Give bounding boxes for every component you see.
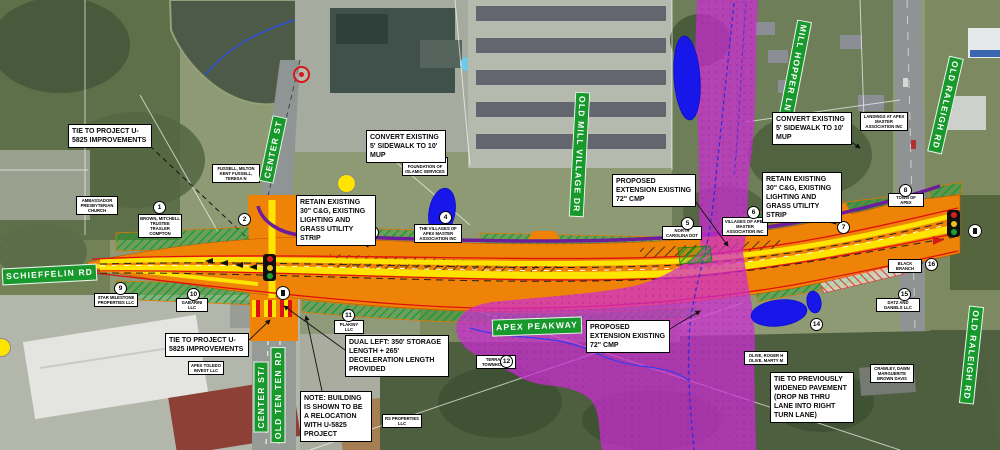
street-label-old-ten-ten-rd: OLD TEN TEN RD [271, 347, 286, 443]
red-utility-marker-icon [293, 66, 310, 83]
parcel-label: PLAKINY LLC [334, 320, 364, 334]
parcel-label: DATZ AND DANIELS LLC [876, 298, 920, 312]
callout-dual-left: DUAL LEFT: 350' STORAGE LENGTH + 265' DE… [345, 335, 449, 377]
callout-retain-cg-west: RETAIN EXISTING 30" C&G, EXISTING LIGHTI… [296, 195, 376, 246]
parcel-label: AMBASSADOR PRESBYTERIAN CHURCH [76, 196, 118, 215]
street-label-apex-peakway: APEX PEAKWAY [492, 316, 583, 336]
callout-proposed-ext-north: PROPOSED EXTENSION EXISTING 72" CMP [612, 174, 696, 207]
parcel-marker: 8 [899, 184, 912, 197]
parcel-label: THE VILLAGES OF APEX MASTER ASSOCIATION … [414, 224, 462, 243]
callout-convert-sidewalk-east: CONVERT EXISTING 5' SIDEWALK TO 10' MUP [772, 112, 852, 145]
callout-note-building: NOTE: BUILDING IS SHOWN TO BE A RELOCATI… [300, 391, 372, 442]
parcel-marker: 15 [898, 288, 911, 301]
bicycle-symbol-icon [968, 224, 982, 238]
plan-map: CENTER ST SCHIEFFELIN RD OLD MILL VILLAG… [0, 0, 1000, 450]
parcel-marker: 1 [153, 201, 166, 214]
callout-tie-u5825-sw: TIE TO PROJECT U-5825 IMPROVEMENTS [165, 333, 249, 357]
parcel-marker: 6 [747, 206, 760, 219]
pedestrian-symbol-icon [276, 286, 290, 300]
callout-proposed-ext-south: PROPOSED EXTENSION EXISTING 72" CMP [586, 320, 670, 353]
lane-tie-bars [252, 300, 292, 317]
parcel-label: STAR MILESTONE PROPERTIES LLC [94, 293, 138, 307]
callout-convert-sidewalk-west: CONVERT EXISTING 5' SIDEWALK TO 10' MUP [366, 130, 446, 163]
parcel-label: RS PROPERTIES LLC [382, 414, 422, 428]
street-label-center-st-south: CENTER ST/ [254, 362, 269, 433]
parcel-label: OLIVE, ROGER H OLIVE, MARTY M [744, 351, 788, 365]
parcel-label: CRAWLEY, DAWN MARGUERITE BROWN DAVIS [870, 364, 914, 383]
callout-tie-u5825-nw: TIE TO PROJECT U-5825 IMPROVEMENTS [68, 124, 152, 148]
signal-head-icon [337, 174, 356, 193]
parcel-marker: 9 [114, 282, 127, 295]
traffic-signal-icon [947, 210, 960, 237]
parcel-marker: 12 [500, 355, 513, 368]
parcel-label: BLACK BRANCH [888, 259, 922, 273]
parcel-marker: 14 [810, 318, 823, 331]
parcel-label: BROWN, MITCHELL TRUSTEE TRAXLER COMPTON [138, 214, 182, 238]
culvert-area [678, 246, 712, 264]
parcel-marker: 11 [342, 309, 355, 322]
callout-retain-cg-east: RETAIN EXISTING 30" C&G, EXISTING LIGHTI… [762, 172, 842, 223]
callout-tie-widened: TIE TO PREVIOUSLY WIDENED PAVEMENT (DROP… [770, 372, 854, 423]
parcel-label: APEX TOLEDO INVEST LLC [188, 361, 224, 375]
parcel-label: LANDINGS AT APEX MASTER ASSOCIATION INC [860, 112, 908, 131]
traffic-signal-icon [263, 254, 276, 281]
parcel-label: FUSSELL, MILTON KENT FUSSELL, TERESA N [212, 164, 260, 183]
parcel-marker: 16 [925, 258, 938, 271]
parcel-marker: 5 [681, 217, 694, 230]
parcel-marker: 10 [187, 288, 200, 301]
parcel-marker: 2 [238, 213, 251, 226]
parcel-marker: 4 [439, 211, 452, 224]
